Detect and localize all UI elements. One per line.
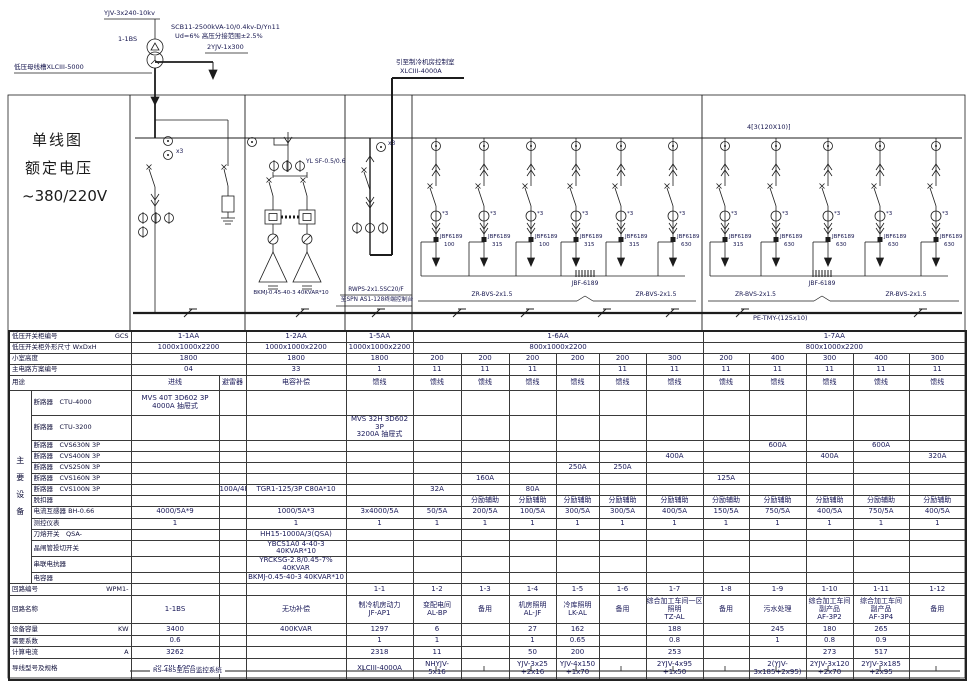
table-cell (219, 495, 246, 506)
table-cell: 1-2 (413, 584, 461, 596)
table-cell (131, 440, 219, 451)
table-cell (461, 624, 509, 636)
row-label: 测控仪表 (31, 518, 131, 529)
row-label: 断路器 CVS400N 3P (31, 451, 131, 462)
single-line-diagram-sheet: YJV-3x240-10kv 1-1BS SCB11-2500kVA-10/0.… (0, 0, 973, 689)
table-cell: 1000/5A*3 (246, 506, 346, 518)
table-cell (646, 462, 703, 473)
transformer-spec2-label: Ud=6% 高压分接范围±2.5% (175, 33, 263, 40)
table-cell (219, 596, 246, 624)
table-cell (413, 556, 461, 572)
table-cell: 3262 (131, 647, 219, 659)
table-cell: 400 (749, 353, 806, 364)
row-label: 设备容量KW (9, 624, 131, 636)
table-cell (219, 518, 246, 529)
table-cell (556, 364, 599, 375)
table-cell: 300 (909, 353, 966, 364)
table-cell (749, 390, 806, 415)
table-cell: HH15-1000A/3(QSA) (246, 529, 346, 540)
row-label: 低压开关柜外形尺寸 WxDxH (9, 342, 131, 353)
table-cell: 300/5A (556, 506, 599, 518)
table-cell (246, 462, 346, 473)
table-cell (246, 584, 346, 596)
table-cell: 400/5A (909, 506, 966, 518)
table-cell: 200 (703, 353, 749, 364)
table-cell: MVS 32H 3D602 3P 3200A 抽屉式 (346, 415, 413, 440)
table-cell: 1 (246, 518, 346, 529)
table-cell: 2YJV-3x185 +2x95 (853, 659, 909, 680)
table-cell (703, 529, 749, 540)
row-label: 断路器 CVS100N 3P (31, 484, 131, 495)
table-cell: 400KVAR (246, 624, 346, 636)
schematic-label: JBF6189 (580, 234, 603, 240)
table-cell: 1-5AA (346, 331, 413, 342)
table-cell: 200 (461, 353, 509, 364)
table-cell: 11 (599, 364, 646, 375)
table-cell: 400 (853, 353, 909, 364)
table-cell (909, 473, 966, 484)
table-cell (413, 451, 461, 462)
table-cell: 分励辅助 (509, 495, 556, 506)
table-cell (909, 624, 966, 636)
sheet-title: 单线图 (32, 132, 83, 149)
table-cell: 馈线 (509, 375, 556, 390)
table-cell: 1 (749, 518, 806, 529)
table-cell: 分励辅助 (461, 495, 509, 506)
table-cell (749, 647, 806, 659)
table-cell: 100A/4P (219, 484, 246, 495)
table-cell (749, 556, 806, 572)
table-cell: 制冷机房动力 JF-AP1 (346, 596, 413, 624)
table-cell (806, 529, 853, 540)
table-cell (461, 415, 509, 440)
table-cell (346, 440, 413, 451)
table-cell (806, 556, 853, 572)
row-label: 低压开关柜编号GCS (9, 331, 131, 342)
table-cell (131, 556, 219, 572)
table-cell (599, 415, 646, 440)
table-cell: 11 (853, 364, 909, 375)
table-cell (749, 451, 806, 462)
table-cell: 11 (806, 364, 853, 375)
meter-x3-label: x3 (176, 149, 183, 156)
table-cell: 1000x1000x2200 (346, 342, 413, 353)
table-cell (909, 390, 966, 415)
table-cell: 3400 (131, 624, 219, 636)
table-cell (806, 473, 853, 484)
row-label: 需要系数 (9, 636, 131, 647)
table-cell (909, 636, 966, 647)
table-cell (131, 415, 219, 440)
table-cell: 进线 (131, 375, 219, 390)
table-cell (219, 440, 246, 451)
table-cell: 180 (806, 624, 853, 636)
table-cell (749, 473, 806, 484)
table-cell (556, 484, 599, 495)
schematic-label: JBF-6189 (809, 281, 836, 288)
table-cell (806, 390, 853, 415)
schematic-label: *3 (679, 211, 685, 217)
table-cell (646, 573, 703, 584)
table-cell (461, 484, 509, 495)
table-cell: 11 (461, 364, 509, 375)
table-cell: 250A (556, 462, 599, 473)
table-cell (461, 659, 509, 680)
schematic-label: 315 (629, 242, 640, 248)
table-cell: 馈线 (646, 375, 703, 390)
table-cell: 1 (131, 518, 219, 529)
table-cell: 1 (556, 518, 599, 529)
table-cell: 6 (413, 624, 461, 636)
row-label: 断路器 CVS250N 3P (31, 462, 131, 473)
table-cell (853, 451, 909, 462)
table-cell: 1800 (246, 353, 346, 364)
table-cell: 750/5A (749, 506, 806, 518)
table-cell (219, 415, 246, 440)
table-cell (806, 415, 853, 440)
schematic-label: *3 (537, 211, 543, 217)
table-cell: 400/5A (806, 506, 853, 518)
table-cell: 综合加工车间一区 照明 TZ-AL (646, 596, 703, 624)
table-cell: 600A (853, 440, 909, 451)
table-cell: 1-12 (909, 584, 966, 596)
table-cell: 1-1BS (131, 596, 219, 624)
table-cell: 800x1000x2200 (703, 342, 966, 353)
table-cell: 机房照明 AL-JF (509, 596, 556, 624)
rated-voltage-label: 额定电压 (25, 160, 93, 177)
table-cell (246, 636, 346, 647)
table-cell: 馈线 (346, 375, 413, 390)
capacitor-model-label: BKMJ-0.45-40-3 40KVAR*10 (253, 290, 328, 296)
table-cell: 1 (703, 518, 749, 529)
schematic-label: *3 (627, 211, 633, 217)
table-cell (556, 529, 599, 540)
table-cell (461, 573, 509, 584)
table-cell (556, 556, 599, 572)
table-cell (131, 584, 219, 596)
table-cell: 变配电间 AL-BP (413, 596, 461, 624)
row-label: 晶闸管投切开关 (31, 540, 131, 556)
table-cell (413, 473, 461, 484)
table-cell: 80A (509, 484, 556, 495)
table-cell (599, 556, 646, 572)
table-cell: 188 (646, 624, 703, 636)
schematic-label: JBF6189 (625, 234, 648, 240)
table-cell: 1-7 (646, 584, 703, 596)
table-cell (461, 636, 509, 647)
table-cell (853, 484, 909, 495)
table-cell (853, 556, 909, 572)
table-cell (599, 529, 646, 540)
table-cell: 1-9 (749, 584, 806, 596)
schematic-label: JBF6189 (535, 234, 558, 240)
table-cell: 0.65 (556, 636, 599, 647)
table-cell (646, 540, 703, 556)
table-cell: 11 (509, 364, 556, 375)
table-cell: 1297 (346, 624, 413, 636)
table-cell (346, 495, 413, 506)
table-cell: 517 (853, 647, 909, 659)
table-cell (246, 659, 346, 680)
table-cell (246, 440, 346, 451)
schematic-label: 630 (681, 242, 692, 248)
schematic-label: *3 (731, 211, 737, 217)
table-cell: 冷库照明 LK-AL (556, 596, 599, 624)
to-chiller-room-label: 引至制冷机房控制室 (396, 59, 455, 66)
table-cell: MVS 40T 3D602 3P 4000A 抽屉式 (131, 390, 219, 415)
table-cell: 1800 (131, 353, 246, 364)
table-cell (219, 556, 246, 572)
table-cell: 1-8 (703, 584, 749, 596)
table-cell (131, 495, 219, 506)
table-cell (749, 415, 806, 440)
schematic-label: *3 (886, 211, 892, 217)
table-cell (246, 415, 346, 440)
table-cell: 200/5A (461, 506, 509, 518)
table-cell (413, 495, 461, 506)
table-cell: 0.8 (806, 636, 853, 647)
table-cell: 1-11 (853, 584, 909, 596)
table-cell (853, 573, 909, 584)
table-cell (806, 440, 853, 451)
table-cell: 分励辅助 (749, 495, 806, 506)
table-cell (509, 529, 556, 540)
table-cell: 200 (509, 353, 556, 364)
row-label: 断路器 CVS630N 3P (31, 440, 131, 451)
schematic-label: JBF6189 (780, 234, 803, 240)
table-cell (646, 473, 703, 484)
table-cell (646, 484, 703, 495)
table-cell (749, 462, 806, 473)
table-cell: 200 (556, 647, 599, 659)
table-cell: 1-10 (806, 584, 853, 596)
table-cell: YBCS1A0 4-40-3 40KVAR*10 (246, 540, 346, 556)
row-label: 主电路方案编号 (9, 364, 131, 375)
table-cell (646, 440, 703, 451)
table-cell (556, 473, 599, 484)
table-cell: 馈线 (413, 375, 461, 390)
table-cell (703, 484, 749, 495)
table-cell: 馈线 (556, 375, 599, 390)
table-cell: 100/5A (509, 506, 556, 518)
row-label: 导线型号及规格 (9, 659, 131, 680)
table-cell: 1 (346, 636, 413, 647)
table-cell: 600A (749, 440, 806, 451)
table-cell: 1-3 (461, 584, 509, 596)
table-cell (806, 484, 853, 495)
table-cell (909, 484, 966, 495)
rated-voltage-value: ~380/220V (22, 188, 107, 205)
to-chiller-busway-label: XLCIII-4000A (400, 68, 442, 75)
table-cell (413, 529, 461, 540)
row-label: 回路名称 (9, 596, 131, 624)
table-cell: 避雷器 (219, 375, 246, 390)
table-cell: 1 (599, 518, 646, 529)
table-cell: 1000x1000x2200 (131, 342, 246, 353)
table-cell (346, 484, 413, 495)
table-cell: 11 (413, 647, 461, 659)
table-cell (909, 462, 966, 473)
table-cell: 2YJV-4x95 +1x50 (646, 659, 703, 680)
table-cell: 4000/5A*9 (131, 506, 219, 518)
table-cell (509, 540, 556, 556)
table-cell (346, 573, 413, 584)
table-cell (909, 540, 966, 556)
table-cell: 1 (346, 518, 413, 529)
table-cell: 1 (413, 636, 461, 647)
transformer-spec1-label: SCB11-2500kVA-10/0.4kv-D/Yn11 (171, 24, 280, 31)
table-cell (556, 540, 599, 556)
table-cell (599, 636, 646, 647)
table-cell (749, 484, 806, 495)
schematic-label: 315 (492, 242, 503, 248)
table-cell: 2(YJV-3x185+2x95) (749, 659, 806, 680)
row-label: 电流互感器 BH-0.66 (31, 506, 131, 518)
schematic-label: 315 (733, 242, 744, 248)
table-cell (509, 462, 556, 473)
table-cell (599, 390, 646, 415)
row-label: 回路编号WPM1- (9, 584, 131, 596)
table-cell: 245 (749, 624, 806, 636)
table-cell (853, 415, 909, 440)
table-cell (346, 529, 413, 540)
table-cell: 馈线 (853, 375, 909, 390)
table-cell (703, 659, 749, 680)
table-cell (413, 440, 461, 451)
table-cell (646, 556, 703, 572)
table-cell (509, 473, 556, 484)
table-cell (413, 573, 461, 584)
table-cell (461, 647, 509, 659)
table-cell: 50/5A (413, 506, 461, 518)
table-cell: 200 (556, 353, 599, 364)
table-cell (346, 462, 413, 473)
table-cell: 2318 (346, 647, 413, 659)
table-cell (131, 484, 219, 495)
table-cell: 1-7AA (703, 331, 966, 342)
table-cell (749, 573, 806, 584)
table-cell: 11 (646, 364, 703, 375)
row-label: 断路器 CTU-3200 (31, 415, 131, 440)
table-cell: 综合加工车间 副产品 AF-3P2 (806, 596, 853, 624)
table-cell (413, 540, 461, 556)
table-cell: 50 (509, 647, 556, 659)
table-cell: 污水处理 (749, 596, 806, 624)
table-cell (599, 540, 646, 556)
table-cell: 1-1AA (131, 331, 246, 342)
table-cell (599, 473, 646, 484)
meter-x3-label: x3 (388, 141, 395, 148)
table-cell (703, 624, 749, 636)
table-cell (703, 556, 749, 572)
table-cell: YRCKSG-2.8/0.45-7% 40KVAR (246, 556, 346, 572)
table-cell (509, 390, 556, 415)
table-cell (909, 556, 966, 572)
table-cell: 1 (413, 518, 461, 529)
table-cell (703, 440, 749, 451)
table-cell: 0.9 (853, 636, 909, 647)
table-cell (461, 440, 509, 451)
schematic-label: ZR-BVS-2x1.5 (636, 292, 677, 299)
table-cell (909, 440, 966, 451)
schematic-label: 630 (784, 242, 795, 248)
table-cell: YJV-3x25 +2x16 (509, 659, 556, 680)
schematic-label: ZR-BVS-2x1.5 (886, 292, 927, 299)
table-cell: 200 (599, 353, 646, 364)
table-cell (219, 647, 246, 659)
table-cell: NHYJV- 5x16 (413, 659, 461, 680)
table-cell (599, 659, 646, 680)
schematic-label: JBF-6189 (572, 281, 599, 288)
schematic-label: 630 (944, 242, 955, 248)
table-cell (853, 390, 909, 415)
table-cell (703, 415, 749, 440)
table-cell (703, 390, 749, 415)
table-cell (909, 659, 966, 680)
table-cell: 备用 (703, 596, 749, 624)
table-cell (509, 415, 556, 440)
schematic-label: *3 (942, 211, 948, 217)
table-cell: XLCIII-5000 (131, 659, 219, 680)
table-cell (556, 440, 599, 451)
table-cell: 馈线 (461, 375, 509, 390)
busbar-spec-label: 4[3(120X10)] (747, 124, 791, 131)
table-cell: 馈线 (749, 375, 806, 390)
table-cell: 1 (346, 364, 413, 375)
schematic-label: *3 (490, 211, 496, 217)
schematic-label: *3 (834, 211, 840, 217)
table-cell (131, 529, 219, 540)
table-cell: 320A (909, 451, 966, 462)
table-cell: 1 (509, 636, 556, 647)
table-cell (749, 540, 806, 556)
table-cell (346, 390, 413, 415)
row-label: 小室高度 (9, 353, 131, 364)
row-label: 计算电流A (9, 647, 131, 659)
table-cell: 1 (461, 518, 509, 529)
schematic-label: 100 (444, 242, 455, 248)
table-cell (131, 473, 219, 484)
schematic-label: ZR-BVS-2x1.5 (472, 292, 513, 299)
table-cell: TGR1-125/3P C80A*10 (246, 484, 346, 495)
row-label: 脱扣器 (31, 495, 131, 506)
row-label: 用途 (9, 375, 131, 390)
table-cell: 馈线 (909, 375, 966, 390)
schematic-label: *3 (782, 211, 788, 217)
table-cell (219, 573, 246, 584)
table-cell (346, 473, 413, 484)
table-cell (806, 462, 853, 473)
table-cell: 馈线 (599, 375, 646, 390)
schematic-label: 100 (539, 242, 550, 248)
table-cell: 11 (413, 364, 461, 375)
table-cell (461, 529, 509, 540)
table-cell (461, 540, 509, 556)
table-cell: 分励辅助 (646, 495, 703, 506)
table-cell: BKMJ-0.45-40-3 40KVAR*10 (246, 573, 346, 584)
table-cell (703, 451, 749, 462)
table-cell: 33 (246, 364, 346, 375)
table-cell: 1 (509, 518, 556, 529)
table-cell (556, 573, 599, 584)
table-cell: 273 (806, 647, 853, 659)
table-cell (646, 529, 703, 540)
table-cell (599, 624, 646, 636)
table-cell (219, 390, 246, 415)
table-cell (509, 451, 556, 462)
table-cell (599, 573, 646, 584)
table-cell: 400/5A (646, 506, 703, 518)
